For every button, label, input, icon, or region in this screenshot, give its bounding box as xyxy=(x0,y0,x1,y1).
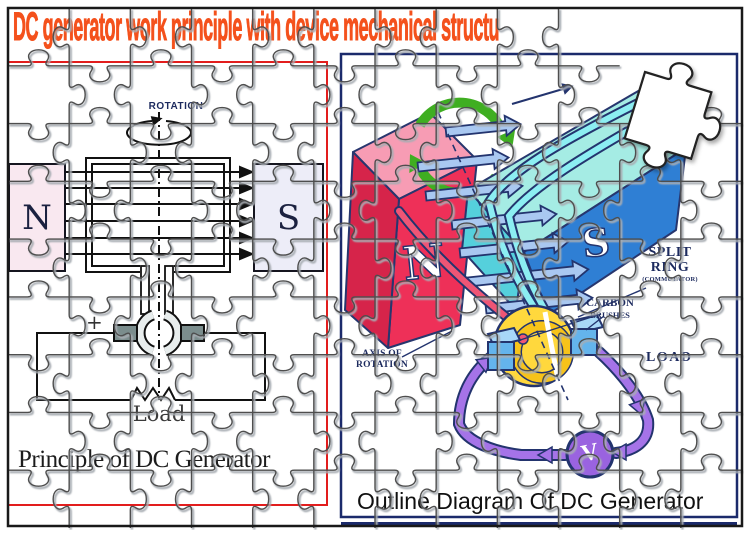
rotation-arrowhead-icon xyxy=(151,113,164,126)
split-ring-label: SPLIT RING (COMMUTATOR) xyxy=(628,245,712,283)
magnet-s-right-letter: S xyxy=(567,213,624,270)
axis-label-line2: ROTATION xyxy=(354,360,410,371)
coil-current-arrow xyxy=(512,89,563,104)
carbon-line2: BRUSHES xyxy=(578,310,642,320)
right-panel-caption: Outline Diagram Of DC Generator xyxy=(357,488,703,515)
page-title: DC generator work principle with device … xyxy=(13,5,499,50)
carbon-brushes-label: CARBON BRUSHES xyxy=(578,297,642,320)
split-ring-line1: SPLIT xyxy=(628,245,712,260)
rotation-label: ROTATION xyxy=(146,101,206,112)
split-ring-line2: RING xyxy=(628,260,712,275)
load-label-left: Load xyxy=(126,402,192,426)
magnet-n-left-letter: N xyxy=(22,198,52,238)
resistor-symbol xyxy=(131,388,175,400)
circuit-wire-left xyxy=(37,333,131,400)
left-diagram xyxy=(9,62,327,505)
coil-current-arrowhead-icon xyxy=(561,80,575,95)
magnet-n-right-letter: N xyxy=(391,229,457,295)
brush-right xyxy=(181,325,204,341)
split-ring-sub: (COMMUTATOR) xyxy=(628,276,712,283)
magnet-n-left: N xyxy=(8,163,66,272)
voltmeter-label: V xyxy=(574,437,605,470)
axis-of-rotation-label: AXIS OF ROTATION xyxy=(354,349,410,371)
load-label-right: LOAD xyxy=(646,350,692,366)
magnet-s-left-letter: S xyxy=(277,198,300,238)
carbon-line1: CARBON xyxy=(578,297,642,310)
left-panel-caption: Principle of DC Generator xyxy=(18,446,270,474)
coil-lead-right xyxy=(165,266,173,314)
circuit-wire-right xyxy=(175,333,265,400)
axis-label-line1: AXIS OF xyxy=(354,349,410,360)
brush-left xyxy=(114,325,137,341)
polarity-plus-label: + xyxy=(86,310,103,334)
puzzle-poster: DC generator work principle with device … xyxy=(0,0,750,536)
coil-lead-left xyxy=(141,266,149,314)
magnet-s-left: S xyxy=(253,163,324,272)
